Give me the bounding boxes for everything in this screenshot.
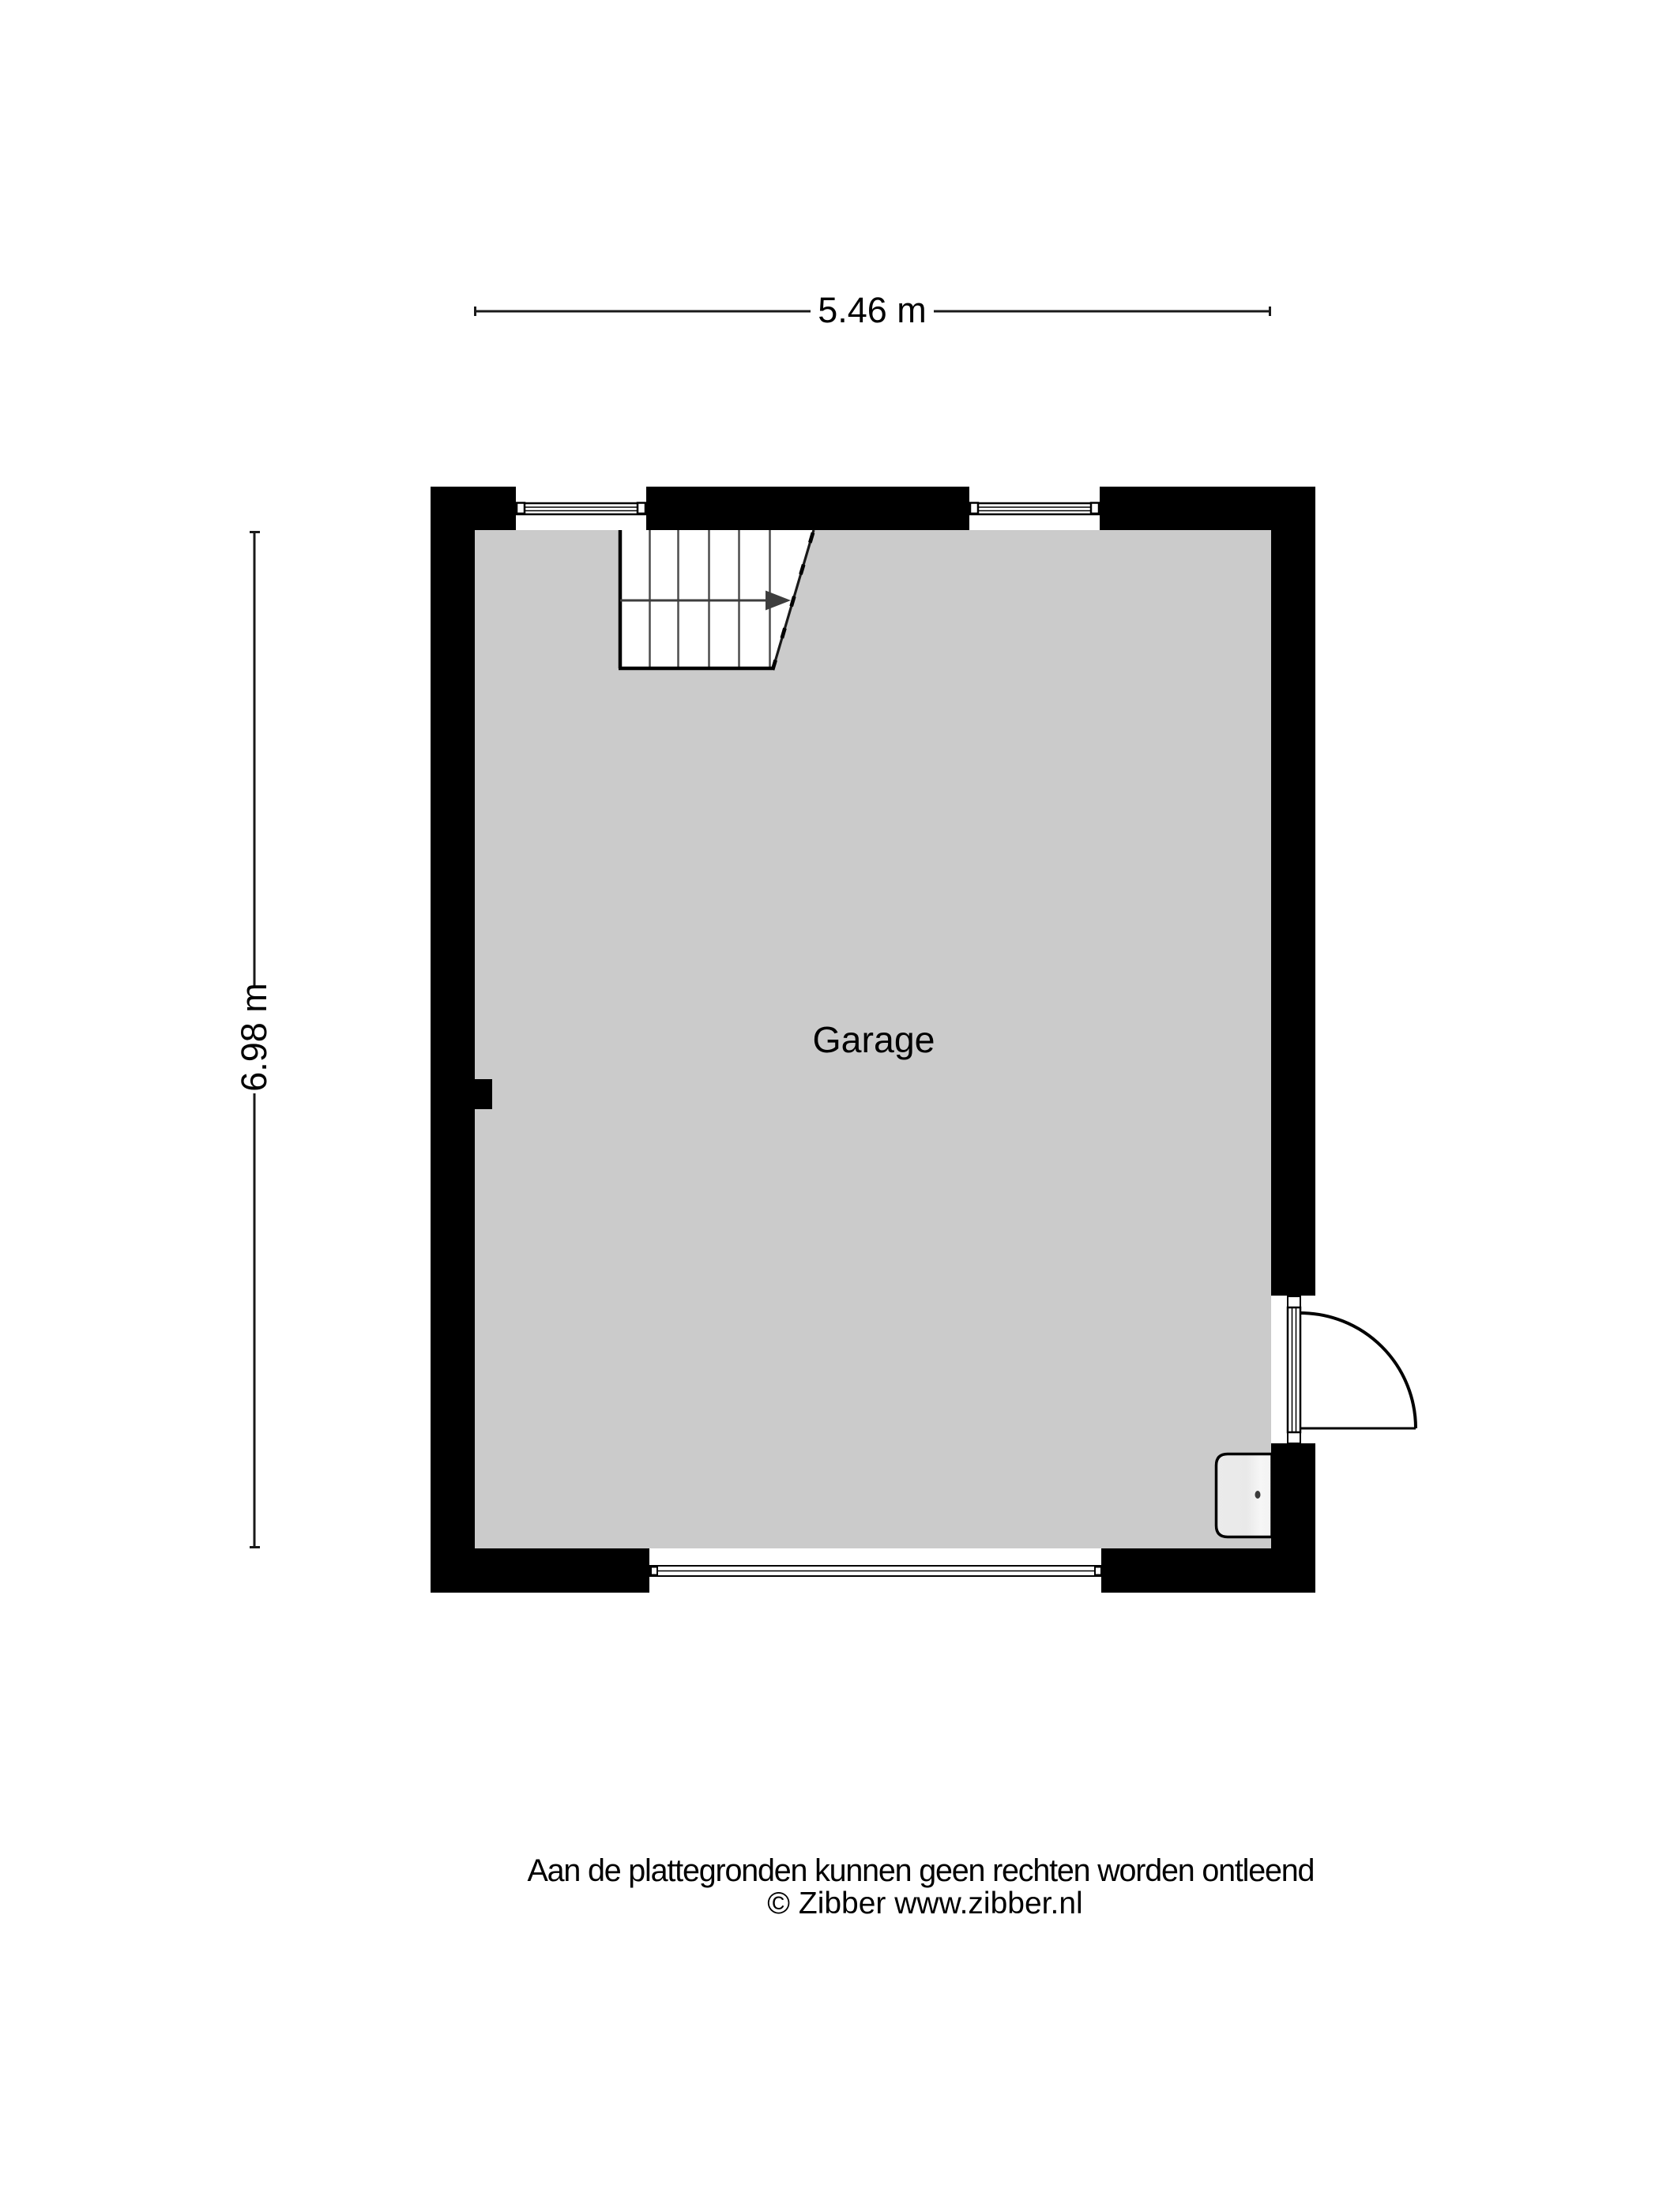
svg-text:6.98 m: 6.98 m [234,983,274,1092]
svg-text:5.46 m: 5.46 m [818,290,927,330]
svg-text:© Zibber www.zibber.nl: © Zibber www.zibber.nl [767,1887,1082,1920]
svg-text:Garage: Garage [812,1019,935,1060]
svg-text:Aan de plattegronden kunnen ge: Aan de plattegronden kunnen geen rechten… [528,1853,1315,1888]
